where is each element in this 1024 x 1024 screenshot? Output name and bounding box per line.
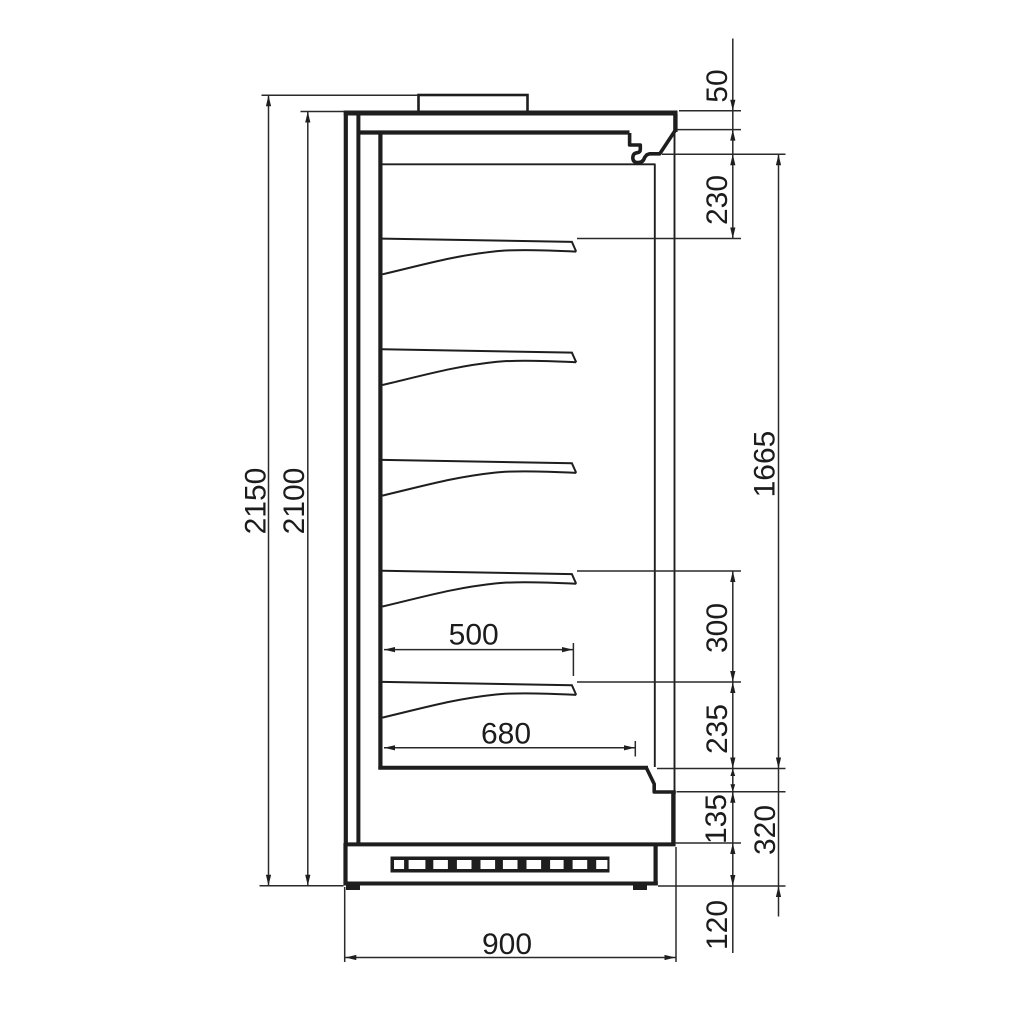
svg-text:230: 230	[701, 175, 734, 225]
svg-text:50: 50	[701, 69, 734, 102]
svg-text:500: 500	[449, 619, 499, 652]
svg-text:1665: 1665	[749, 431, 782, 498]
svg-text:900: 900	[482, 928, 532, 961]
svg-text:135: 135	[700, 794, 733, 844]
svg-text:320: 320	[749, 805, 782, 855]
svg-text:2100: 2100	[278, 468, 311, 535]
svg-text:300: 300	[701, 603, 734, 653]
svg-text:235: 235	[701, 704, 734, 754]
svg-text:2150: 2150	[240, 468, 273, 535]
svg-text:120: 120	[701, 900, 734, 950]
svg-text:680: 680	[481, 718, 531, 751]
